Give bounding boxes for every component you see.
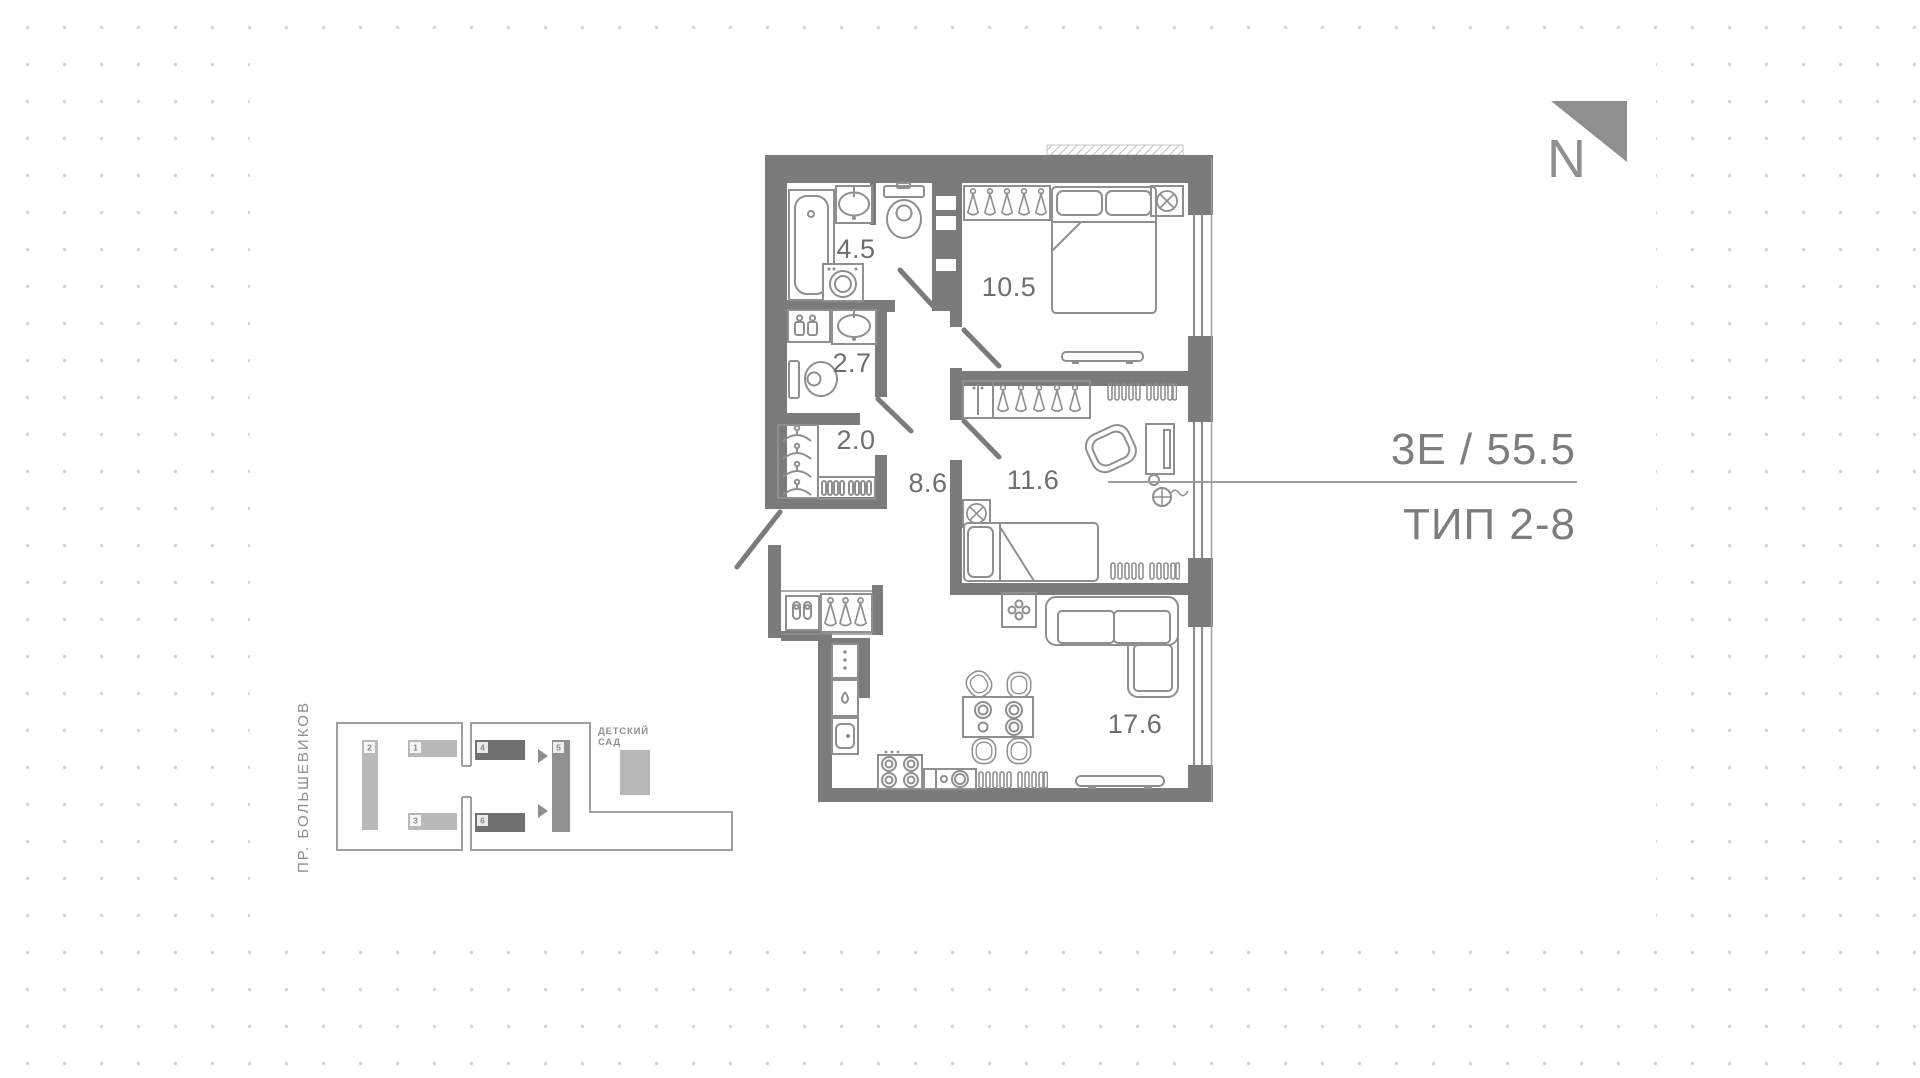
sofa-icon — [1046, 597, 1178, 697]
building-number-chips: 2 1 3 4 6 5 — [364, 742, 564, 826]
building-5 — [552, 740, 570, 832]
svg-text:1: 1 — [413, 743, 418, 753]
chair-icon — [1007, 672, 1030, 697]
convector-icon — [1153, 488, 1188, 506]
north-arrow-icon: N — [1547, 101, 1627, 189]
double-bed-icon — [1052, 187, 1156, 313]
hanger-icon — [821, 594, 872, 632]
windows — [1194, 158, 1212, 802]
kindergarten-label-2: САД — [598, 737, 621, 748]
unit-type-area: 3Е / 55.5 — [1391, 425, 1576, 474]
radiator-icon — [979, 772, 1048, 788]
stove-icon — [878, 751, 922, 789]
street-label: ПР. БОЛЬШЕВИКОВ — [295, 701, 312, 873]
kindergarten-building — [620, 750, 650, 795]
tv-console-icon — [1076, 776, 1164, 789]
window-bedroom1 — [1194, 215, 1202, 336]
window-bedroom2 — [1194, 422, 1202, 558]
ac-place-hatch — [1047, 145, 1183, 155]
sink-icon — [832, 310, 876, 344]
kitchen-sink-icon — [832, 718, 858, 754]
counter-sink-icon — [924, 769, 976, 789]
site-boundary — [337, 723, 732, 850]
dining-table-icon — [962, 667, 1033, 764]
bathroom-door — [900, 270, 933, 306]
fridge-icon — [832, 644, 858, 678]
kindergarten-label-1: ДЕТСКИЙ — [598, 725, 649, 737]
unit-type-code: ТИП 2-8 — [1403, 500, 1576, 549]
desk-monitor-icon — [1146, 424, 1174, 485]
hall-closet — [781, 591, 872, 634]
tv-console-icon — [1062, 352, 1143, 364]
window-living — [1194, 627, 1202, 765]
armchair-icon — [1082, 421, 1141, 477]
bedroom2-door — [964, 421, 999, 457]
site-plan: ПР. БОЛЬШЕВИКОВ 2 1 3 4 6 5 — [280, 695, 760, 875]
north-label: N — [1547, 129, 1586, 189]
building-2 — [362, 740, 378, 830]
shoe-rack-icon — [818, 477, 875, 499]
route-arrow-icon — [538, 749, 548, 763]
svg-text:2: 2 — [367, 743, 372, 753]
single-bed-icon — [964, 523, 1098, 581]
wc-door — [878, 399, 911, 431]
svg-text:5: 5 — [556, 743, 561, 753]
living-kitchen-furniture — [832, 593, 1178, 789]
room-area-closet: 2.0 — [836, 425, 875, 455]
washing-machine-icon — [823, 264, 863, 301]
radiator-icon — [1111, 563, 1180, 579]
bedroom1-door — [964, 330, 999, 366]
toilet-icon — [884, 183, 924, 238]
toilet-icon — [789, 361, 837, 398]
kitchen-cabinet-icon — [832, 680, 858, 716]
unit-title: 3Е / 55.5 ТИП 2-8 — [1108, 425, 1577, 549]
room-area-hallway: 8.6 — [908, 468, 947, 498]
svg-text:4: 4 — [480, 743, 485, 753]
room-area-wc: 2.7 — [832, 348, 871, 378]
wardrobe-icon — [963, 381, 1090, 418]
floor-plan: 4.5 2.7 2.0 8.6 10.5 11.6 17.6 3Е / 55.5… — [725, 95, 1630, 830]
bottles-icon — [788, 310, 830, 342]
svg-text:3: 3 — [413, 816, 418, 826]
sink-icon — [836, 186, 872, 223]
room-area-bathroom: 4.5 — [836, 234, 875, 264]
svg-text:6: 6 — [480, 816, 485, 826]
chair-icon — [962, 667, 996, 701]
room-area-bedroom2: 11.6 — [1007, 465, 1060, 495]
plant-icon — [1002, 593, 1036, 627]
kindergarten: ДЕТСКИЙ САД — [598, 725, 650, 795]
page-canvas: 4.5 2.7 2.0 8.6 10.5 11.6 17.6 3Е / 55.5… — [0, 0, 1920, 1078]
chair-icon — [972, 738, 995, 763]
room-area-living: 17.6 — [1108, 709, 1163, 739]
site-buildings: 2 1 3 4 6 5 — [362, 740, 570, 832]
radiator-icon — [1108, 384, 1177, 400]
wardrobe-icon — [964, 186, 1050, 220]
slippers-icon — [786, 596, 819, 630]
route-arrow-icon — [538, 804, 548, 818]
room-area-bedroom1: 10.5 — [982, 272, 1037, 302]
chair-icon — [1007, 738, 1030, 763]
